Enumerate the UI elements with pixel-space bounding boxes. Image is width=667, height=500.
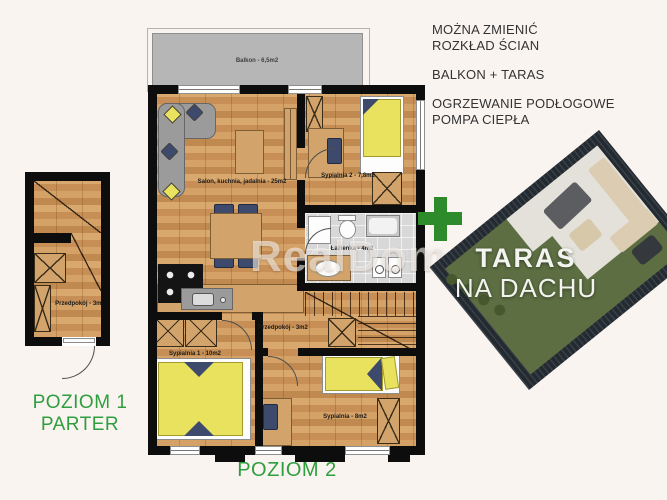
- window: [255, 446, 282, 455]
- desk-chair: [263, 404, 278, 430]
- faucet-icon: [220, 297, 226, 303]
- terrace-caption-title: TARAS: [446, 243, 606, 273]
- info-panel: MOŻNA ZMIENIĆ ROZKŁAD ŚCIAN BALKON + TAR…: [432, 22, 662, 128]
- pillow-icon: [184, 362, 214, 377]
- spacer: [432, 83, 662, 96]
- room-label-sypialnia2: Sypialnia 2 - 7,8m2: [316, 173, 380, 179]
- level1-stairs-upper: [34, 181, 101, 233]
- wall-segment: [297, 94, 305, 148]
- window: [170, 446, 200, 455]
- sink-bowl: [192, 293, 214, 306]
- cabinet-icon: [34, 285, 51, 332]
- terrace-caption-subtitle: NA DACHU: [446, 273, 606, 303]
- wall-segment: [200, 446, 255, 455]
- wall-segment: [25, 172, 34, 346]
- info-line: BALKON + TARAS: [432, 67, 662, 83]
- level1-title-line1: POZIOM 1: [20, 392, 140, 414]
- spacer: [432, 54, 662, 67]
- plus-icon: [418, 212, 462, 225]
- balcony-door-window: [288, 85, 322, 94]
- wall-segment: [322, 85, 425, 94]
- wall-segment: [252, 312, 263, 320]
- room-label-sypialnia1: Sypialnia 1 - 10m2: [150, 351, 240, 357]
- info-line: ROZKŁAD ŚCIAN: [432, 38, 662, 54]
- level1-title: POZIOM 1 PARTER: [20, 392, 140, 437]
- info-line: POMPA CIEPŁA: [432, 112, 662, 128]
- level2-title: POZIOM 2: [212, 459, 362, 483]
- wall-segment: [34, 233, 71, 243]
- window: [345, 446, 390, 455]
- wall-segment: [297, 180, 305, 228]
- wardrobe-icon: [306, 96, 323, 132]
- wall-segment: [25, 172, 110, 181]
- pillow-icon: [363, 99, 379, 115]
- wardrobe-icon: [328, 318, 356, 347]
- floorplan-canvas: Przedpokój - 3m2 POZIOM 1 PARTER Balkon …: [0, 0, 667, 500]
- room-label-salon: Salon, kuchnia, jadalnia - 25m2: [188, 179, 296, 185]
- wall-segment: [255, 348, 268, 356]
- wall-segment: [148, 312, 222, 320]
- terrace-caption: TARAS NA DACHU: [446, 243, 606, 303]
- pillow-icon: [184, 421, 214, 436]
- door-swing-arc: [62, 346, 95, 379]
- level1-title-line2: PARTER: [20, 414, 140, 436]
- wardrobe-icon: [377, 398, 400, 444]
- room-label-sypialnia: Sypialnia - 8m2: [305, 414, 385, 420]
- wall-segment: [148, 85, 157, 455]
- wall-segment: [25, 337, 62, 346]
- wall-segment: [416, 85, 425, 100]
- info-line: OGRZEWANIE PODŁOGOWE: [432, 96, 662, 112]
- wall-segment: [255, 320, 263, 446]
- room-label-balkon: Balkon - 6,5m2: [192, 58, 322, 64]
- window: [416, 100, 425, 170]
- wall-segment: [282, 446, 345, 455]
- wardrobe-icon: [34, 253, 66, 283]
- wall-segment: [101, 172, 110, 346]
- stairs-diagonal-line: [305, 292, 416, 352]
- wall-segment: [298, 348, 416, 356]
- wall-segment: [148, 446, 170, 455]
- shelf-unit: [284, 108, 297, 180]
- info-line: MOŻNA ZMIENIĆ: [432, 22, 662, 38]
- wall-segment: [390, 446, 425, 455]
- coffee-table: [235, 130, 264, 174]
- kitchen-sink: [181, 288, 233, 310]
- level1-stairs-lower: [71, 233, 101, 291]
- wall-pier: [388, 455, 410, 462]
- room-label-przedpokoj: Przedpokój - 3m2: [250, 325, 316, 331]
- watermark: RealDom: [250, 232, 448, 282]
- balcony-door-window: [178, 85, 240, 94]
- entrance-door: [63, 338, 95, 343]
- wall-segment: [297, 205, 416, 213]
- wall-segment: [297, 283, 416, 291]
- wall-segment: [96, 337, 110, 346]
- pillow-icon: [367, 357, 382, 391]
- wall-segment: [240, 85, 288, 94]
